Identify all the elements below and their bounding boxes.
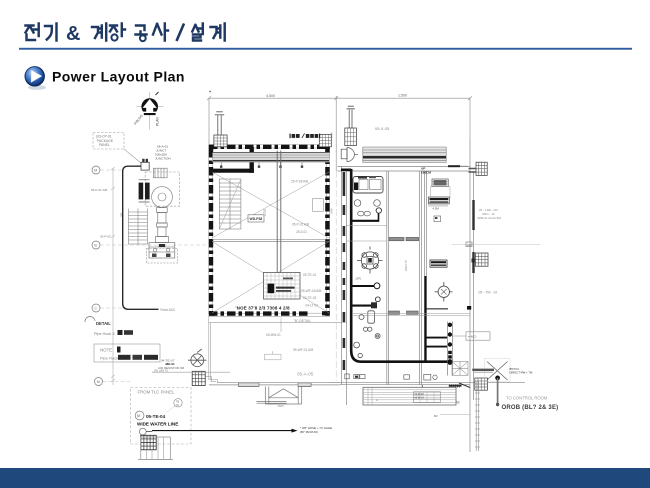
svg-text:05-P-01 A/B: 05-P-01 A/B: [91, 188, 107, 192]
svg-text:Pipe Hock 3: Pipe Hock 3: [94, 332, 114, 336]
svg-text:05-X-05: 05-X-05: [375, 126, 390, 131]
svg-text:DETAIL: DETAIL: [96, 321, 111, 326]
svg-text:05-TE-01: 05-TE-01: [303, 273, 317, 277]
svg-text:'NOE 37'8 2/3 7308 4 2/8: 'NOE 37'8 2/3 7308 4 2/8: [236, 306, 291, 311]
svg-text:(2P): (2P): [356, 277, 362, 281]
svg-text:4.0: 4.0: [119, 212, 123, 217]
svg-text:OROB (BL? 2& 3E): OROB (BL? 2& 3E): [502, 405, 559, 411]
svg-text:A: A: [376, 398, 378, 402]
svg-text:4.5M: 4.5M: [433, 207, 440, 211]
svg-text:04-LT-02: 04-LT-02: [306, 304, 319, 308]
svg-text:05-TE-03: 05-TE-03: [303, 296, 317, 300]
svg-text:"B"-DETAIL: "B"-DETAIL: [294, 319, 312, 323]
svg-text:From ACC: From ACC: [161, 308, 177, 312]
svg-text:05-TE-04: 05-TE-04: [146, 414, 166, 419]
svg-text:05-MW-01: 05-MW-01: [266, 333, 281, 337]
svg-text:M: M: [97, 380, 100, 384]
svg-text:#8 8# 2#: #8 8# 2#: [415, 397, 425, 400]
svg-text:1,500: 1,500: [398, 94, 407, 98]
svg-text:PLAN: PLAN: [155, 117, 159, 126]
svg-text:[05 p88 8 ]: [05 p88 8 ]: [154, 369, 168, 373]
svg-text:35-P-03: 35-P-03: [100, 235, 111, 239]
svg-text:WIDE WATER LINE: WIDE WATER LINE: [137, 421, 178, 426]
svg-text:FROM TLC PANEL: FROM TLC PANEL: [138, 390, 175, 395]
svg-text:2600: 2600: [278, 404, 285, 408]
svg-text:05-WP-01 A/B: 05-WP-01 A/B: [293, 348, 313, 352]
svg-text:DIRECT RW + 7M: DIRECT RW + 7M: [510, 371, 533, 375]
svg-text:05-WP-42/A/B: 05-WP-42/A/B: [301, 289, 321, 293]
svg-text:= 4(C): = 4(C): [468, 335, 476, 339]
svg-text:C: C: [94, 306, 97, 310]
svg-text:AL FRM: AL FRM: [404, 260, 408, 271]
svg-text:988-LN 23-41 6M: 988-LN 23-41 6M: [478, 216, 502, 220]
svg-text:Power Layout Plan: Power Layout Plan: [52, 69, 185, 85]
svg-text:04: 04: [176, 403, 180, 407]
svg-text:25-6-01: 25-6-01: [296, 230, 307, 234]
svg-text:8-9#: 8-9#: [330, 132, 334, 138]
svg-text:Pipe Rack: Pipe Rack: [100, 356, 118, 361]
svg-text:05-A-05: 05-A-05: [297, 372, 314, 377]
svg-text:05-P-31 A/B: 05-P-31 A/B: [292, 223, 309, 227]
svg-text:JUNCTION: JUNCTION: [155, 157, 171, 161]
svg-text:TO CONTROL ROOM: TO CONTROL ROOM: [506, 396, 548, 401]
svg-text:M: M: [137, 414, 140, 418]
svg-text:M: M: [94, 168, 97, 172]
svg-text:8# ## #8: 8# ## #8: [415, 393, 425, 396]
svg-text:3-0#: 3-0#: [330, 208, 334, 214]
svg-text:4,500: 4,500: [266, 94, 275, 98]
svg-text:B2: B2: [434, 414, 438, 418]
svg-text:WD-P38: WD-P38: [250, 217, 263, 221]
svg-text:&: &: [66, 23, 80, 45]
svg-text:PANEL: PANEL: [99, 143, 110, 147]
svg-text:12#: 12#: [467, 243, 472, 247]
svg-text:180CM: 180CM: [421, 170, 431, 174]
svg-text:PACKAGE: PACKAGE: [97, 139, 114, 143]
svg-text:25-P-28 A/B: 25-P-28 A/B: [291, 180, 308, 184]
svg-text:(BY 3M RUN): (BY 3M RUN): [300, 430, 318, 434]
svg-text:05 - TW - 02: 05 - TW - 02: [479, 291, 498, 295]
svg-text:NOTE: NOTE: [100, 348, 112, 353]
